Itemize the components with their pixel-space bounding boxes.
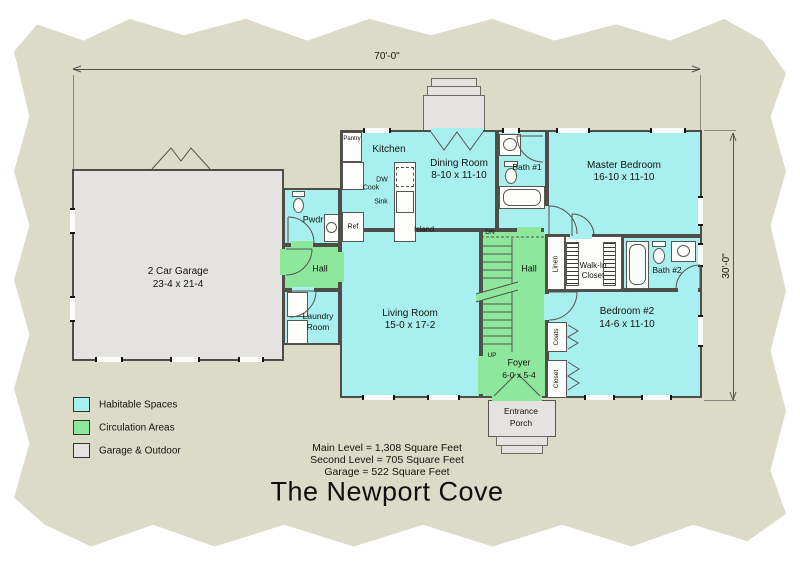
area-main-level: Main Level = 1,308 Square Feet <box>312 443 462 454</box>
label-living-name: Living Room <box>382 309 438 319</box>
label-garage-name: 2 Car Garage <box>148 267 209 277</box>
label-laundry-2: Room <box>307 323 330 332</box>
label-foyer-size: 6-0 x 5-4 <box>502 371 536 380</box>
legend-label-garage: Garage & Outdoor <box>99 446 181 457</box>
label-coats: Coats <box>554 329 561 346</box>
label-closet: Closet <box>554 370 561 388</box>
label-hall-center: Hall <box>521 265 537 274</box>
label-dw: DW <box>376 177 388 184</box>
area-second-level: Second Level = 705 Square Feet <box>310 455 464 466</box>
staircase <box>476 237 547 352</box>
label-island: Island <box>414 225 434 233</box>
label-bath2: Bath #2 <box>652 266 681 275</box>
label-foyer-name: Foyer <box>507 359 530 368</box>
floor-plan-sheet: 70'-0" 30'-0" <box>0 0 800 572</box>
label-dining-name: Dining Room <box>430 159 488 169</box>
label-hall-west: Hall <box>312 265 328 274</box>
label-stairs-dn: DN <box>485 230 494 237</box>
label-kitchen: Kitchen <box>372 145 405 155</box>
legend-label-habitable: Habitable Spaces <box>99 400 177 411</box>
label-bedroom2-name: Bedroom #2 <box>600 307 654 317</box>
legend-swatch-circulation <box>73 420 90 435</box>
label-garage-size: 23-4 x 21-4 <box>153 280 204 290</box>
dimension-arrows <box>73 66 736 400</box>
label-sink: Sink <box>374 199 388 206</box>
label-powder: Pwdr <box>303 216 324 225</box>
label-master-name: Master Bedroom <box>587 161 661 171</box>
label-dining-size: 8-10 x 11-10 <box>431 171 486 181</box>
label-master-size: 16-10 x 11-10 <box>594 173 655 183</box>
label-wic-2: Closet <box>582 272 605 280</box>
garage-gable-icon <box>152 148 210 169</box>
label-porch-1: Entrance <box>504 407 538 416</box>
label-bath1: Bath #1 <box>512 163 541 172</box>
label-wic-1: Walk-In <box>580 262 607 270</box>
legend-label-circulation: Circulation Areas <box>99 423 175 434</box>
label-ref: Ref <box>348 224 359 231</box>
label-living-size: 15-0 x 17-2 <box>385 321 436 331</box>
plan-title: The Newport Cove <box>270 479 503 506</box>
label-bedroom2-size: 14-6 x 11-10 <box>599 320 654 330</box>
label-linen: Linen <box>553 255 560 272</box>
label-cook: Cook <box>363 185 379 192</box>
legend-swatch-habitable <box>73 397 90 412</box>
label-laundry-1: Laundry <box>303 312 334 321</box>
bifold-doors <box>568 325 579 390</box>
label-stairs-up: UP <box>487 353 496 360</box>
label-pantry: Pantry <box>343 136 360 142</box>
legend-swatch-garage <box>73 443 90 458</box>
label-porch-2: Porch <box>510 419 532 428</box>
